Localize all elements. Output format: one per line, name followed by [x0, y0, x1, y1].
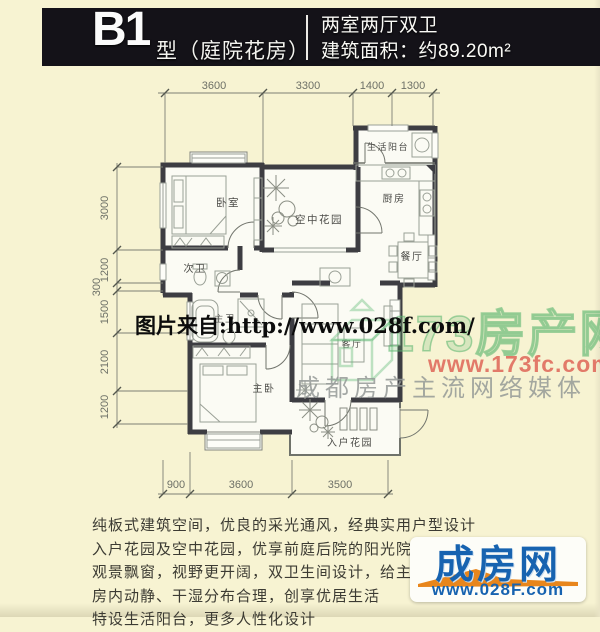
room-label-kitchen: 厨房 — [383, 192, 406, 205]
room-label-life-balcony: 生活阳台 — [367, 141, 409, 152]
header-divider — [306, 15, 308, 60]
header-banner: B1 型（庭院花房） 两室两厅双卫 建筑面积：约89.20m² — [42, 8, 600, 66]
dim-bottom-3: 3500 — [328, 479, 352, 491]
room-label-second-bath: 次卫 — [184, 262, 207, 275]
dim-left-5: 2100 — [99, 350, 111, 374]
brand-url: www.028F.com — [410, 580, 586, 600]
dim-bottom-2: 3600 — [229, 479, 253, 491]
watermark-image-source: 图片来自:http://www.028f.com/ — [135, 310, 475, 340]
dim-top-2: 3300 — [296, 80, 320, 92]
unit-layout-text: 两室两厅双卫 — [321, 13, 511, 39]
dimensions-bottom — [158, 452, 393, 498]
room-label-dining: 餐厅 — [401, 250, 424, 263]
room-label-sky-garden: 空中花园 — [295, 213, 343, 226]
room-label-bedroom: 卧室 — [216, 196, 240, 209]
dim-bottom-1: 900 — [167, 479, 185, 491]
unit-type-suffix: 型（庭院花房） — [156, 35, 310, 65]
unit-spec: 两室两厅双卫 建筑面积：约89.20m² — [321, 13, 511, 65]
brand-logo: 成房网 www.028F.com — [410, 537, 586, 602]
unit-area-text: 建筑面积：约89.20m² — [321, 39, 511, 65]
dim-top-3: 1400 — [360, 80, 384, 92]
dim-left-1: 3000 — [99, 196, 111, 220]
plan-floor-fill — [163, 128, 435, 455]
floor-plan: 3600 3300 1400 1300 3000 1200 300 1500 2… — [88, 78, 478, 506]
room-label-entry-garden: 入户花园 — [327, 436, 373, 449]
dim-top-1: 3600 — [202, 80, 226, 92]
description-line-5: 特设生活阳台，更多人性化设计 — [92, 608, 572, 632]
watermark-site-slogan: 成都房产主流网络媒体 — [296, 368, 586, 403]
dim-left-4: 1500 — [99, 300, 111, 324]
dim-top-4: 1300 — [401, 80, 425, 92]
dim-left-6: 1200 — [99, 395, 111, 419]
dimension-labels-left: 3000 1200 300 1500 2100 1200 — [91, 196, 111, 419]
dimension-labels-bottom: 900 3600 3500 — [167, 479, 352, 491]
room-label-master-bedroom: 主卧 — [253, 382, 276, 395]
dim-left-3: 300 — [91, 278, 103, 296]
unit-type-code: B1 — [92, 6, 149, 54]
dimension-labels-top: 3600 3300 1400 1300 — [202, 80, 425, 92]
